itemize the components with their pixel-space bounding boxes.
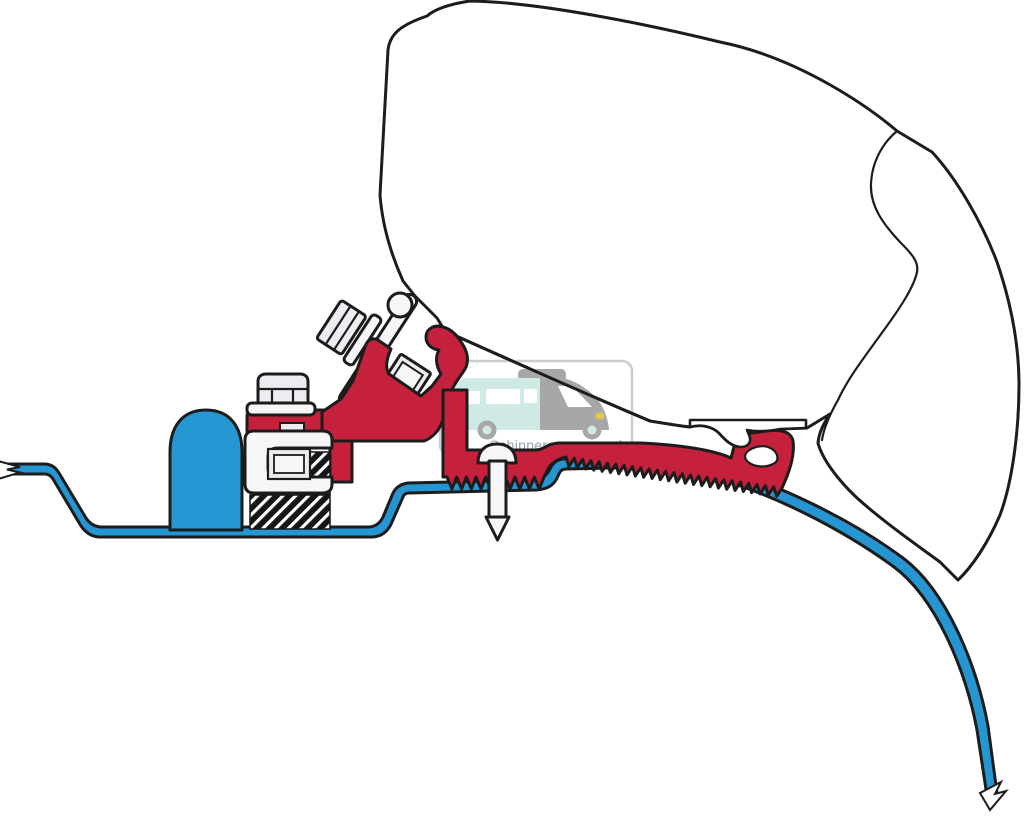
roof-seal-dome <box>170 410 242 530</box>
channel-block-inner <box>274 455 304 473</box>
awning-adapter-cross-section: Schippercaravans.nl <box>0 0 1024 821</box>
van-window-3 <box>524 389 537 403</box>
awning-case <box>380 1 1019 580</box>
clamp-channel-group <box>245 423 332 529</box>
van-window-2 <box>486 389 520 404</box>
van-wheel-front-hub <box>588 426 597 435</box>
screw-tip <box>486 517 509 540</box>
lead-rail-bead <box>388 293 412 317</box>
adapter-wedge-slot <box>745 446 777 466</box>
roof-break-symbol-right <box>980 782 1006 810</box>
screw-shaft <box>489 461 506 517</box>
diagram-canvas: Schippercaravans.nl <box>0 0 1024 821</box>
hatched-section-base <box>250 495 330 529</box>
van-headlight <box>596 413 605 420</box>
vertical-bolt-assembly <box>247 374 315 415</box>
awning-case-outline <box>380 1 1019 580</box>
washer-vertical <box>247 403 315 415</box>
van-wheel-rear-hub <box>483 426 492 435</box>
